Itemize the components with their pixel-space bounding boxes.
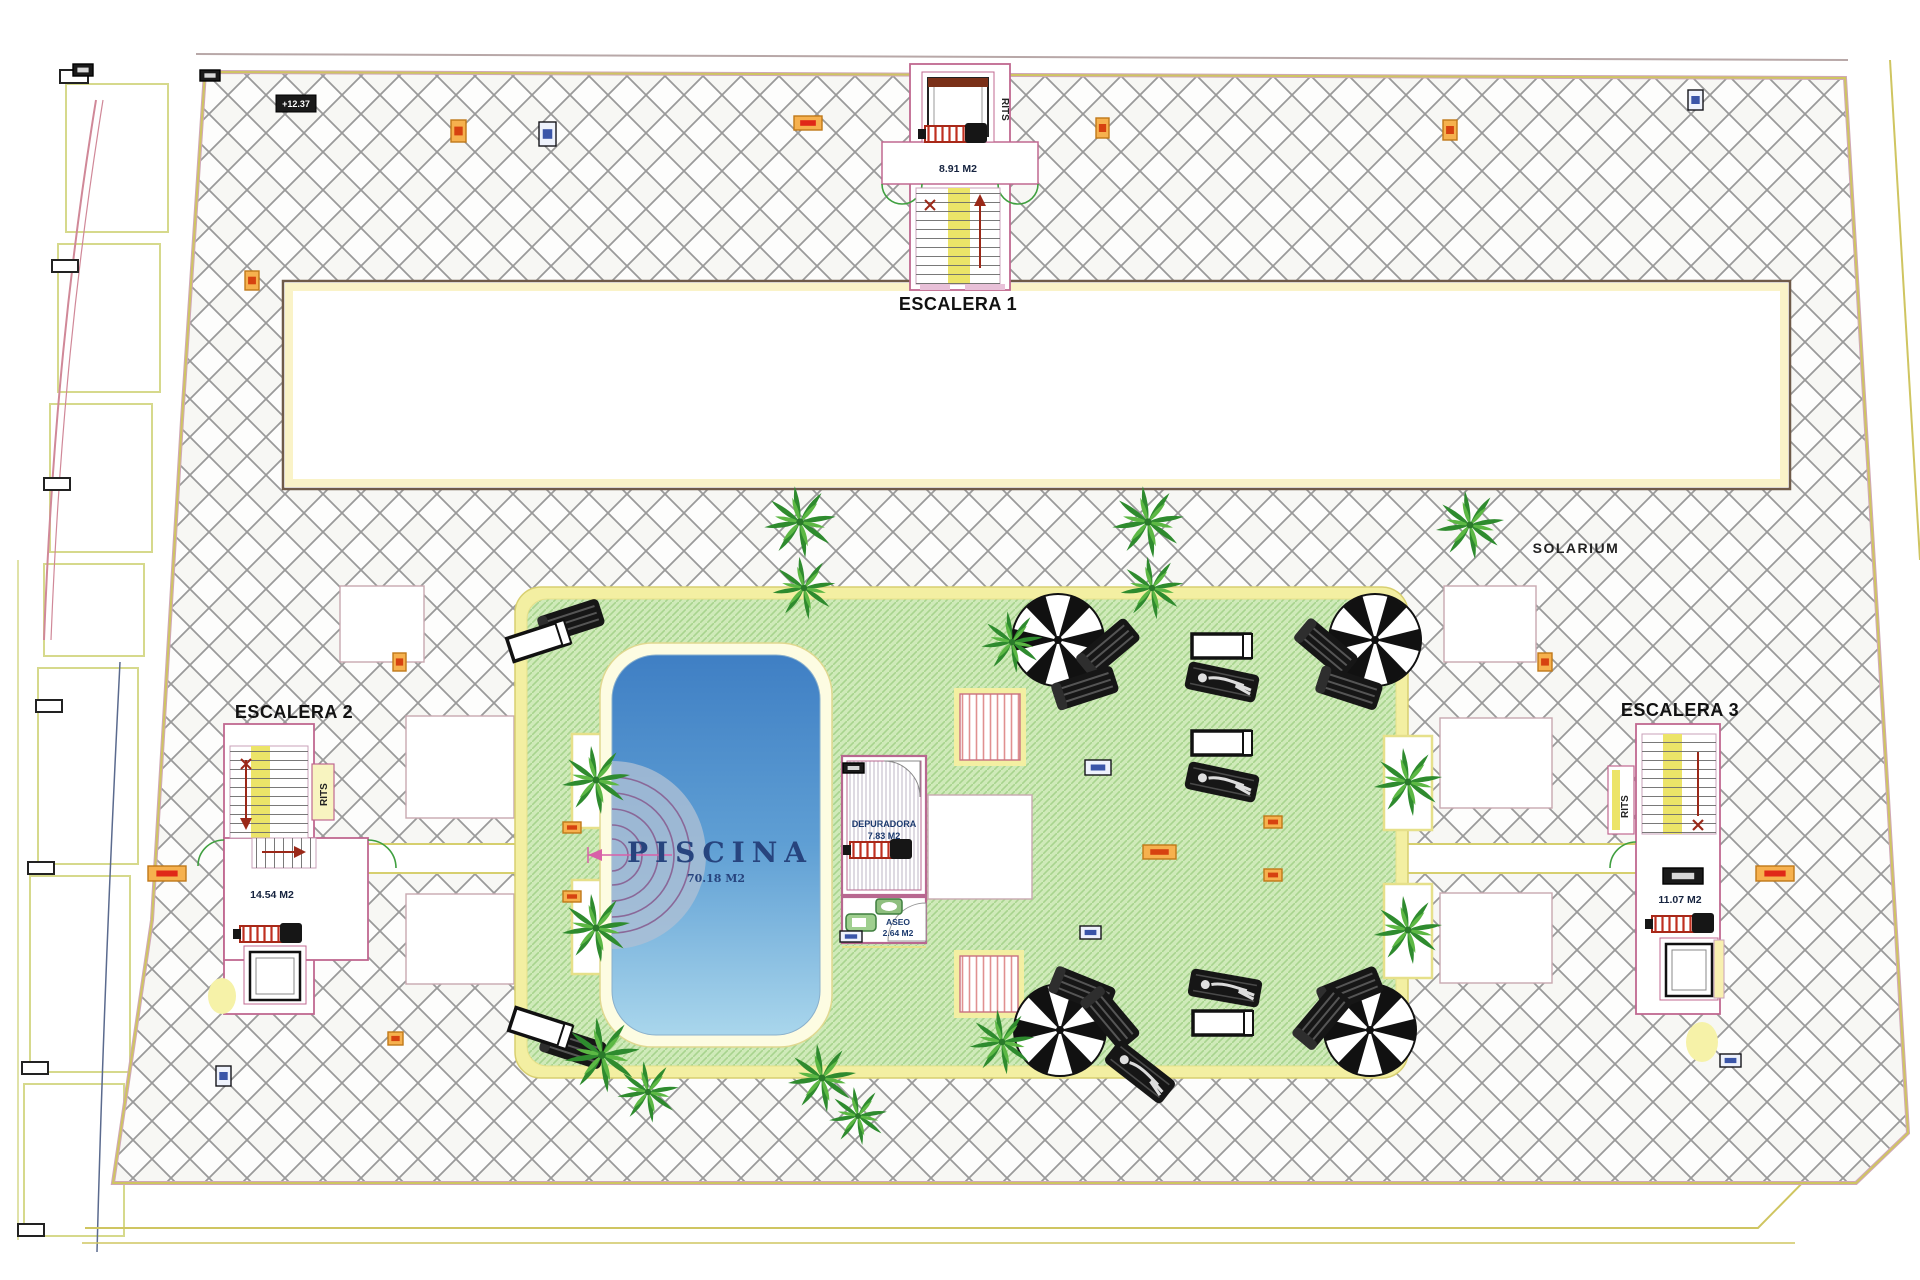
orange-marker <box>388 1032 403 1045</box>
white-lounger-icon <box>1192 731 1252 755</box>
stair-flight <box>1642 734 1716 834</box>
rits-label: RITS <box>319 783 330 806</box>
light-well <box>1444 586 1536 662</box>
void-rectangle <box>283 281 1790 489</box>
light-well <box>406 894 514 984</box>
threshold <box>965 284 1005 290</box>
blue-marker <box>1720 1054 1741 1067</box>
depuradora-label: DEPURADORA <box>852 819 917 829</box>
escalera1-title: ESCALERA 1 <box>899 294 1017 314</box>
orange-marker <box>563 891 581 902</box>
orange-marker <box>1538 653 1552 671</box>
deck-stairs-upper <box>954 688 1026 766</box>
deck-stairs-lower <box>954 950 1024 1018</box>
black-marker <box>1663 868 1703 884</box>
pillar <box>52 260 78 272</box>
black-marker <box>843 763 864 773</box>
terrace-room <box>30 876 130 1072</box>
terrace-room <box>66 84 168 232</box>
escalera3-title: ESCALERA 3 <box>1621 700 1739 720</box>
threshold <box>920 284 950 290</box>
corridor-west <box>368 844 515 873</box>
orange-marker <box>451 120 466 142</box>
level-marker-label: +12.37 <box>282 99 310 109</box>
orange-marker <box>1143 845 1176 859</box>
landing-blob <box>208 978 236 1014</box>
pump-machine-icon <box>843 839 912 859</box>
floor-plan: SOLARIUM <box>0 0 1920 1280</box>
orange-marker <box>1264 869 1282 881</box>
pillar <box>28 862 54 874</box>
terrace-room <box>38 668 138 864</box>
orange-marker <box>1096 118 1109 138</box>
escalera1-area-label: 8.91 M2 <box>939 163 977 175</box>
blue-marker <box>1080 926 1101 939</box>
rits-label: RITS <box>1620 795 1631 818</box>
floor-plan-page: SOLARIUM <box>0 0 1920 1280</box>
elevator-icon <box>1660 938 1724 1000</box>
level-marker: +12.37 <box>276 95 316 112</box>
light-well <box>1440 718 1552 808</box>
white-lounger-icon <box>1193 1011 1253 1035</box>
elevator-icon <box>244 946 306 1004</box>
black-marker <box>200 70 220 81</box>
light-well <box>340 586 424 662</box>
piscina-label: PISCINA <box>627 836 813 869</box>
light-well <box>1440 893 1552 983</box>
blue-marker <box>840 931 862 942</box>
solarium-label: SOLARIUM <box>1533 540 1620 556</box>
depuradora-area-label: 7.83 M2 <box>868 831 901 841</box>
orange-marker <box>563 822 581 833</box>
aseo-label: ASEO <box>886 917 910 927</box>
piscina-area-label: 70.18 M2 <box>687 872 745 885</box>
blue-marker <box>216 1066 231 1086</box>
escalera2-area-label: 14.54 M2 <box>250 889 294 901</box>
pillar <box>18 1224 44 1236</box>
stair-flight <box>916 188 1000 284</box>
red-marker <box>794 116 822 130</box>
machinery-icon <box>233 923 302 943</box>
aseo-area-label: 2.64 M2 <box>883 928 914 938</box>
landing-blob <box>1686 1022 1718 1062</box>
depuradora-room: DEPURADORA 7.83 M2 <box>842 756 926 895</box>
escalera2-title: ESCALERA 2 <box>235 702 353 722</box>
escalera3-area-label: 11.07 M2 <box>1658 894 1701 906</box>
blue-marker <box>1688 90 1703 110</box>
pillar <box>22 1062 48 1074</box>
corridor-east <box>1408 844 1636 873</box>
light-well <box>406 716 514 818</box>
sink-bowl-icon <box>881 902 897 911</box>
orange-marker <box>1264 816 1282 828</box>
blue-marker <box>539 122 556 146</box>
orange-marker <box>245 271 259 290</box>
pillar <box>36 700 62 712</box>
deck-opening <box>928 795 1032 899</box>
orange-marker <box>393 653 406 671</box>
blue-marker <box>1085 760 1111 775</box>
black-marker <box>73 64 93 76</box>
machinery-icon <box>918 123 987 143</box>
orange-marker <box>1443 120 1457 140</box>
terrace-room <box>44 564 144 656</box>
machinery-icon <box>1645 913 1714 933</box>
red-marker <box>1756 866 1794 881</box>
red-marker <box>148 866 186 881</box>
toilet-seat-icon <box>852 918 866 927</box>
swimming-pool: PISCINA 70.18 M2 <box>588 643 832 1047</box>
white-lounger-icon <box>1192 634 1252 658</box>
pillar <box>44 478 70 490</box>
rits-label: RITS <box>999 98 1010 121</box>
terrace-room <box>24 1084 124 1236</box>
